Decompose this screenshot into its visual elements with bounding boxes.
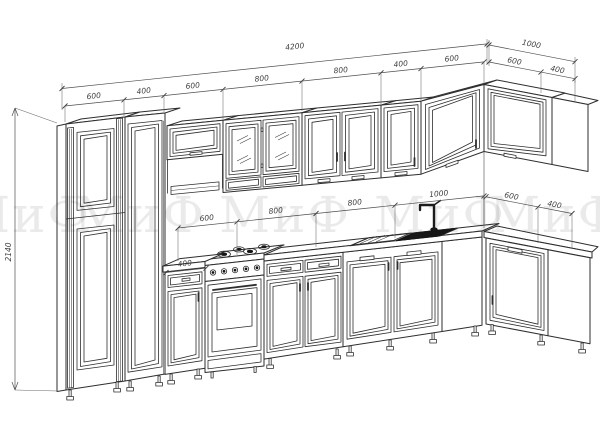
dim-label-top-return-0: 600	[507, 55, 523, 67]
watermark-layer: МиФ МиФ МиФ МиФ МиФ	[0, 186, 600, 244]
base-cabinet-drawers-800	[264, 252, 343, 368]
dim-height: 2140	[4, 108, 58, 391]
dim-label-return-overall: 1000	[521, 38, 542, 51]
dim-label-overall-width: 4200	[285, 41, 305, 52]
dim-label-top-5: 400	[393, 59, 408, 69]
drawer-handle	[281, 267, 291, 271]
watermark-text: МиФ	[374, 186, 506, 244]
watermark-text: МиФ	[219, 186, 351, 244]
vent-slot	[352, 176, 364, 180]
dim-label-height: 2140	[4, 242, 13, 261]
wall-cabinet-return-600	[484, 80, 598, 172]
dim-label-top-1: 400	[136, 86, 151, 96]
vent-slot	[395, 172, 407, 176]
watermark-text: МиФ	[489, 186, 600, 244]
kitchen-technical-drawing: 2140 4200	[0, 0, 600, 424]
drawer-handle	[182, 278, 190, 281]
base-cabinet-return-600	[486, 238, 590, 353]
dim-label-top-0: 600	[86, 91, 101, 101]
vent-slot	[318, 179, 330, 183]
dim-label-top-return-1: 400	[550, 64, 566, 76]
kitchen-elevation-svg: 2140 4200	[0, 0, 600, 424]
base-cabinet-sink-1000	[343, 241, 442, 356]
dim-label-base-cabinet: 400	[177, 258, 192, 268]
drawer-handle	[319, 263, 329, 267]
dim-label-top-2: 600	[185, 80, 200, 90]
base-cabinet-400	[165, 268, 205, 385]
base-cabinet-corner	[442, 237, 482, 336]
dim-label-top-6: 600	[444, 53, 459, 63]
watermark-text: МиФ	[74, 186, 206, 244]
dim-label-top-3: 800	[254, 73, 269, 83]
dim-label-top-4: 800	[333, 65, 348, 75]
